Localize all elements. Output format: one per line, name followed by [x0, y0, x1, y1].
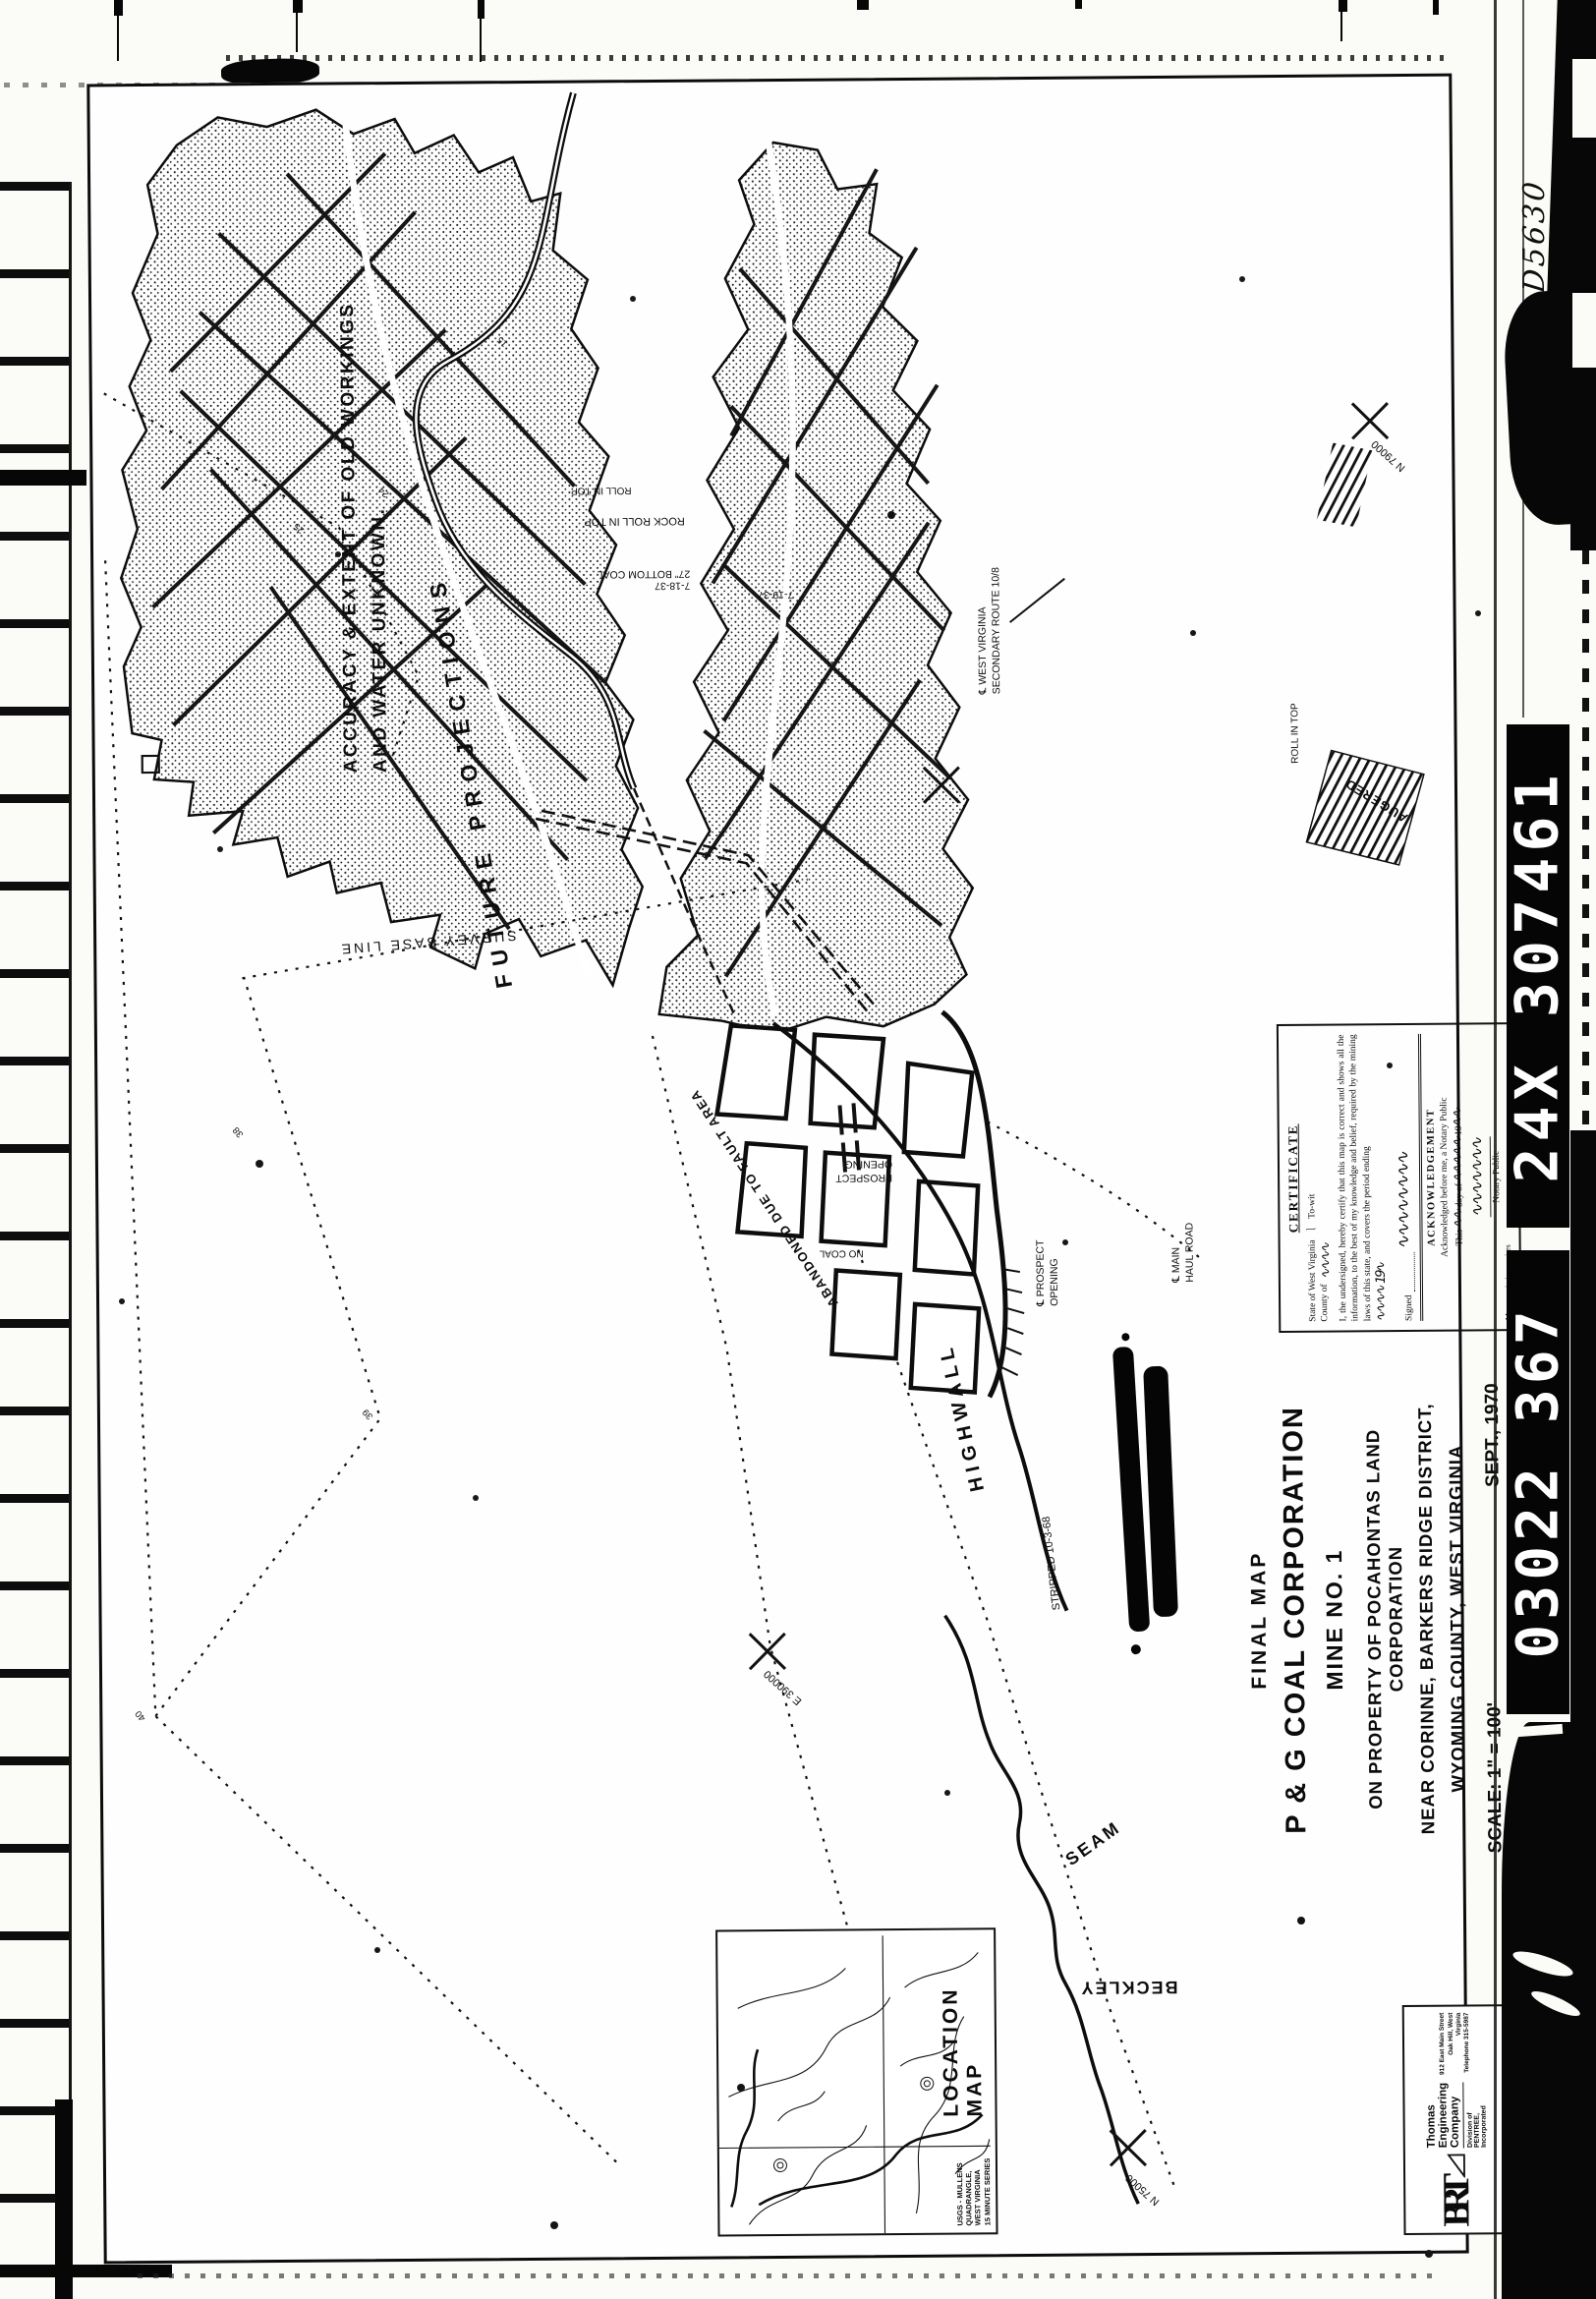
film-sprocket-tick: [296, 13, 298, 52]
film-id-bar-upper: 24X 307461: [1507, 724, 1569, 1228]
certificate-title: CERTIFICATE: [1284, 1035, 1303, 1322]
stamp-firm-name: Thomas Engineering Company: [1425, 2083, 1464, 2149]
scan-speckle-band: [226, 55, 1445, 61]
film-sprocket-tick: [857, 0, 869, 10]
stamp-division: Division of PENTREE, Incorporated: [1466, 2082, 1488, 2148]
county-handwriting: ∿∿∿∿: [1319, 1241, 1336, 1279]
day-handwriting: ∿∿: [1451, 1208, 1467, 1229]
scan-speckle-band: [138, 2273, 1435, 2278]
old-workings-south: [653, 141, 974, 1033]
augered-area: [1306, 750, 1425, 866]
district-line: NEAR CORINNE, BARKERS RIDGE DISTRICT,: [1414, 1370, 1440, 1868]
hatched-band: [1316, 442, 1373, 527]
signature-handwriting: ∿∿∿∿∿∿∿∿: [1393, 1150, 1415, 1250]
rock-roll-label: ROCK ROLL IN TOP: [584, 515, 685, 528]
film-edge-line-left: [69, 182, 72, 2299]
stamp-logo: BRT: [1440, 2184, 1474, 2227]
strip-mine-pillars: [716, 1023, 980, 1394]
stamp-address: 912 East Main Street Oak Hill, West Virg…: [1439, 2012, 1472, 2076]
signature-dots: [1414, 1252, 1415, 1292]
doc-type: FINAL MAP: [1246, 1371, 1274, 1868]
property-line: ON PROPERTY OF POCAHONTAS LAND CORPORATI…: [1362, 1370, 1409, 1868]
film-sprocket-tick: [1433, 0, 1439, 15]
notary-signature-handwriting: ∿∿∿∿∿∿∿: [1467, 1136, 1488, 1218]
film-sprocket-tick: [117, 16, 119, 61]
location-map-caption: USGS - MULLENS QUADRANGLE, WEST VIRGINIA…: [954, 2158, 992, 2226]
certificate-block: CERTIFICATE State of West Virginia ⎱ To-…: [1277, 1022, 1521, 1333]
film-sprocket-tick: [478, 0, 484, 19]
film-edge-bar-thick: [0, 470, 86, 486]
accuracy-note: ACCURACY & EXTENT OF OLD WORKINGS AND WA…: [333, 302, 397, 774]
acknowledgement-section: ACKNOWLEDGEMENT Acknowledged before me, …: [1418, 1033, 1514, 1321]
triangle-logo-icon: [1447, 2154, 1466, 2178]
signed-label: Signed: [1403, 1295, 1416, 1321]
bottom-coal-label: 7-18-37 27" BOTTOM COAL: [598, 568, 691, 593]
film-sprocket-hole: [1572, 293, 1596, 368]
film-sprocket-tick: [293, 0, 303, 13]
film-edge-bars-left: [0, 182, 69, 2258]
certificate-state: State of West Virginia: [1306, 1239, 1319, 1321]
microfilm-scan: FINAL MAP P & G COAL CORPORATION MINE NO…: [0, 0, 1596, 2299]
map-sheet: FINAL MAP P & G COAL CORPORATION MINE NO…: [86, 74, 1468, 2265]
film-frame-line: [1494, 0, 1497, 2299]
beckley-label: BECKLEY: [1079, 1977, 1177, 1998]
brace: ⎱: [1306, 1225, 1318, 1235]
haul-road-label: ℄ MAIN HAUL ROAD: [1169, 1223, 1197, 1283]
date-label: 7-19-37: [758, 589, 793, 601]
certificate-towit: To-wit: [1306, 1194, 1319, 1219]
film-id-bar-lower: 03022 367: [1507, 1250, 1569, 1714]
film-sprocket-tick: [114, 0, 123, 16]
certificate-body: I, the undersigned, hereby certify that …: [1336, 1034, 1374, 1321]
film-sprocket-tick: [480, 19, 482, 62]
mine-number: MINE NO. 1: [1320, 1370, 1350, 1868]
film-sprocket-hole: [1572, 59, 1596, 138]
route-label: ℄ WEST VIRGINIA SECONDARY ROUTE 10/8: [976, 567, 1003, 694]
location-map-box: USGS - MULLENS QUADRANGLE, WEST VIRGINIA…: [715, 1927, 997, 2236]
handwritten-frame-number: D5630: [1517, 178, 1552, 295]
year-handwriting: ∿∿: [1451, 1107, 1467, 1127]
prospect-opening-label: PROSPECT OPENING: [835, 1157, 892, 1184]
title-block: FINAL MAP P & G COAL CORPORATION MINE NO…: [1246, 1369, 1508, 1868]
film-ink-blob: [1502, 1722, 1596, 2299]
company-name: P & G COAL CORPORATION: [1278, 1371, 1314, 1868]
roll-in-top-label: ROLL IN TOP: [1289, 703, 1300, 764]
roll-in-top-label: ROLL IN TOP: [571, 485, 632, 495]
location-map-title: LOCATION MAP: [939, 1929, 987, 2116]
film-edge-dashes: [1582, 550, 1589, 1130]
certificate-county-label: County of: [1319, 1284, 1336, 1321]
no-coal-label: NO COAL: [820, 1247, 864, 1258]
film-sprocket-tick: [1339, 0, 1347, 12]
county-line: WYOMING COUNTY, WEST VIRGINIA: [1445, 1370, 1470, 1868]
scan-noise: [0, 0, 4, 4]
map-content-rotated: FINAL MAP P & G COAL CORPORATION MINE NO…: [89, 77, 1464, 2260]
cl-prospect-label: ℄ PROSPECT OPENING: [1035, 1239, 1062, 1306]
month-handwriting: ∿∿∿∿∿: [1451, 1136, 1467, 1182]
ink-blob: [1112, 1333, 1179, 1655]
film-sprocket-tick: [1075, 0, 1082, 9]
period-handwriting: ∿∿∿∿ 19∿: [1374, 1262, 1391, 1323]
film-sprocket-tick: [1340, 12, 1342, 41]
